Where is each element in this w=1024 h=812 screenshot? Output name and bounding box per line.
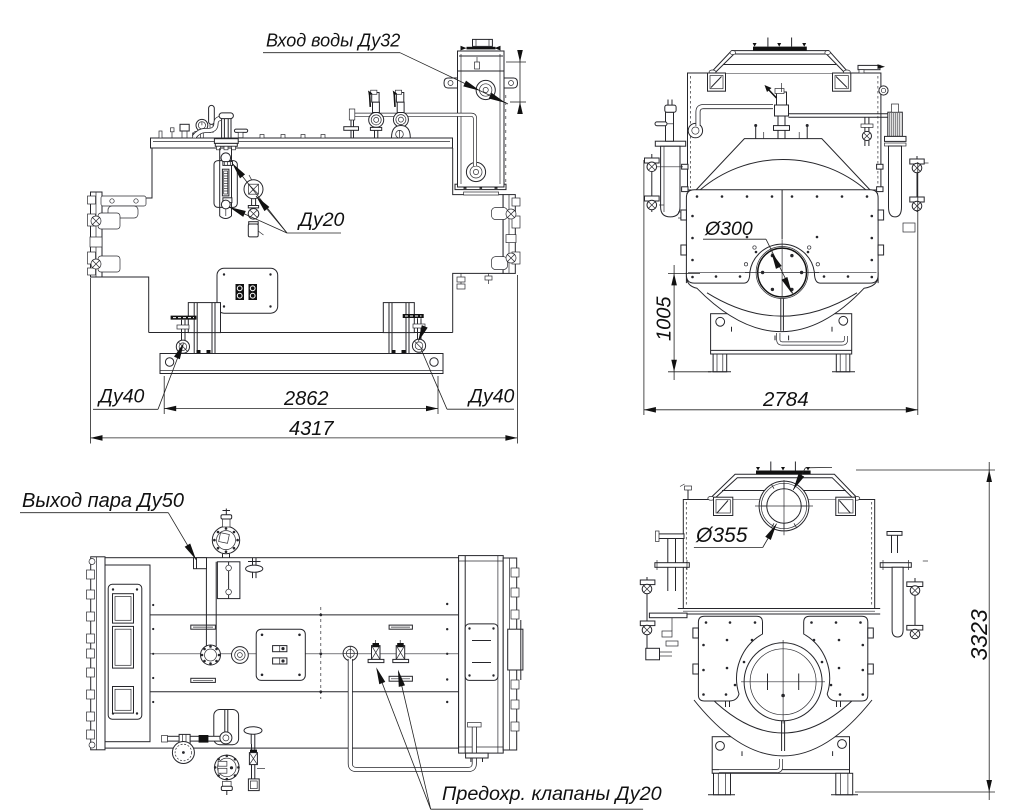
- svg-text:Предохр. клапаны Ду20: Предохр. клапаны Ду20: [442, 783, 662, 805]
- svg-text:Вход воды Ду32: Вход воды Ду32: [266, 31, 400, 51]
- svg-text:2784: 2784: [762, 388, 809, 411]
- svg-text:Выход пара Ду50: Выход пара Ду50: [22, 490, 184, 512]
- svg-text:1005: 1005: [654, 296, 676, 341]
- svg-text:Ø300: Ø300: [704, 218, 753, 240]
- svg-text:Ду40: Ду40: [467, 386, 515, 408]
- svg-text:Ø355: Ø355: [695, 524, 748, 547]
- svg-text:3323: 3323: [966, 609, 992, 660]
- svg-text:4317: 4317: [289, 418, 334, 440]
- svg-text:Ду40: Ду40: [97, 386, 145, 408]
- svg-text:Ду20: Ду20: [297, 209, 345, 231]
- svg-text:2862: 2862: [283, 388, 329, 410]
